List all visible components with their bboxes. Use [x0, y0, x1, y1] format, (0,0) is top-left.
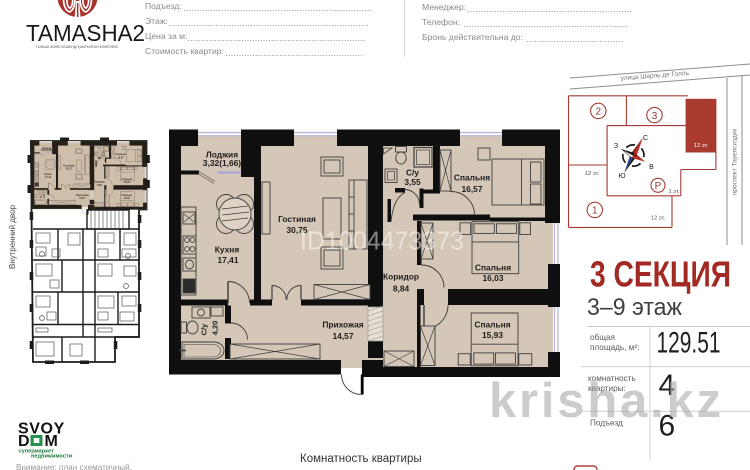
- svg-text:Внимание: план схематичный.: Внимание: план схематичный.: [16, 463, 132, 470]
- svg-text:1: 1: [592, 206, 598, 217]
- svg-text:P: P: [655, 181, 662, 192]
- svg-text:12 эт.: 12 эт.: [694, 143, 709, 149]
- svg-text:Ю: Ю: [618, 173, 625, 180]
- svg-text:Кухня: Кухня: [215, 245, 240, 255]
- svg-text:1 эт.: 1 эт.: [668, 189, 680, 195]
- svg-text:3 СЕКЦИЯ: 3 СЕКЦИЯ: [590, 254, 731, 295]
- svg-text:3: 3: [652, 111, 658, 122]
- svg-text:Телефон:: Телефон:: [422, 17, 460, 27]
- svg-text:TAMASHA2: TAMASHA2: [26, 20, 145, 46]
- svg-text:129.51: 129.51: [657, 327, 721, 360]
- svg-text:14,57: 14,57: [333, 331, 354, 341]
- svg-text:С: С: [643, 135, 648, 142]
- svg-text:проспект Тауелсиздик: проспект Тауелсиздик: [732, 129, 739, 196]
- svg-text:В: В: [649, 164, 654, 171]
- svg-text:M: M: [45, 433, 58, 450]
- svg-text:krisha.kz: krisha.kz: [489, 374, 721, 428]
- svg-text:Этаж:: Этаж:: [145, 16, 168, 26]
- svg-text:Коридор: Коридор: [383, 272, 419, 282]
- svg-text:16,57: 16,57: [462, 184, 483, 194]
- svg-text:общая: общая: [590, 333, 615, 342]
- svg-text:Гостиная: Гостиная: [278, 214, 316, 224]
- svg-text:площадь, м²:: площадь, м²:: [590, 343, 639, 352]
- svg-text:Спальня: Спальня: [474, 319, 510, 329]
- svg-text:недвижимости: недвижимости: [31, 454, 73, 460]
- svg-text:Комнатность квартиры: Комнатность квартиры: [300, 453, 422, 465]
- svg-text:ID1004473373: ID1004473373: [300, 226, 464, 256]
- svg-text:3–9 этаж: 3–9 этаж: [587, 294, 682, 321]
- svg-text:Менеджер:: Менеджер:: [422, 2, 466, 12]
- svg-text:3,55: 3,55: [404, 177, 421, 187]
- svg-text:С/у: С/у: [200, 323, 209, 336]
- svg-text:8,84: 8,84: [393, 284, 410, 294]
- svg-text:Спальня: Спальня: [475, 263, 511, 273]
- svg-text:Бронь действительна до:: Бронь действительна до:: [422, 32, 523, 42]
- svg-text:Прихожая: Прихожая: [322, 320, 363, 330]
- svg-text:4,20: 4,20: [211, 321, 220, 336]
- svg-text:Спальня: Спальня: [454, 173, 490, 183]
- svg-text:12 эт.: 12 эт.: [651, 216, 666, 222]
- svg-text:Подъезд:: Подъезд:: [145, 1, 182, 11]
- svg-text:15,93: 15,93: [482, 330, 503, 340]
- svg-text:ТЫНЫШ ЖӘНЕ КЕШЕНДІ ҚАМТЫЛҒАН К: ТЫНЫШ ЖӘНЕ КЕШЕНДІ ҚАМТЫЛҒАН КОМПЛЕКС: [36, 45, 119, 49]
- svg-text:С/у: С/у: [406, 168, 419, 178]
- svg-text:Цена за м:: Цена за м:: [145, 31, 187, 41]
- svg-text:17,41: 17,41: [218, 255, 239, 265]
- svg-text:З: З: [614, 143, 618, 150]
- svg-text:Стоимость квартир:: Стоимость квартир:: [145, 46, 224, 56]
- svg-text:Внутренний двор: Внутренний двор: [8, 204, 17, 269]
- svg-text:3,32(1,66): 3,32(1,66): [203, 158, 241, 168]
- svg-text:12 эт.: 12 эт.: [585, 171, 600, 177]
- svg-text:D: D: [18, 433, 30, 450]
- svg-text:16,03: 16,03: [483, 273, 504, 283]
- svg-text:2: 2: [596, 107, 602, 118]
